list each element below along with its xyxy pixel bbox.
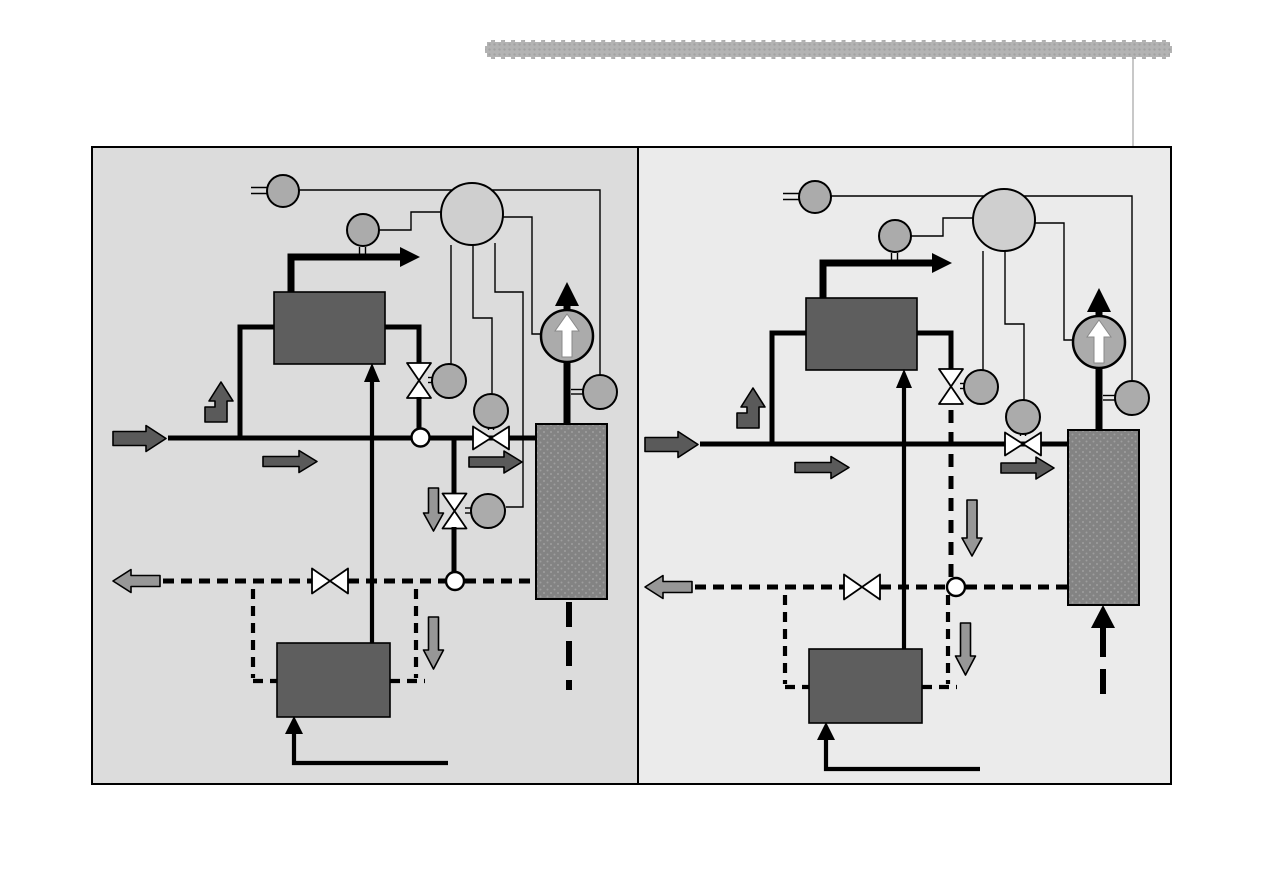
junction-circle-return bbox=[446, 572, 464, 590]
slide-canvas bbox=[0, 0, 1263, 893]
process-diagram bbox=[0, 0, 1263, 893]
sensor-circle-bypass bbox=[471, 494, 505, 528]
junction-circle-main bbox=[412, 429, 430, 447]
junction-circle-return bbox=[947, 578, 965, 596]
